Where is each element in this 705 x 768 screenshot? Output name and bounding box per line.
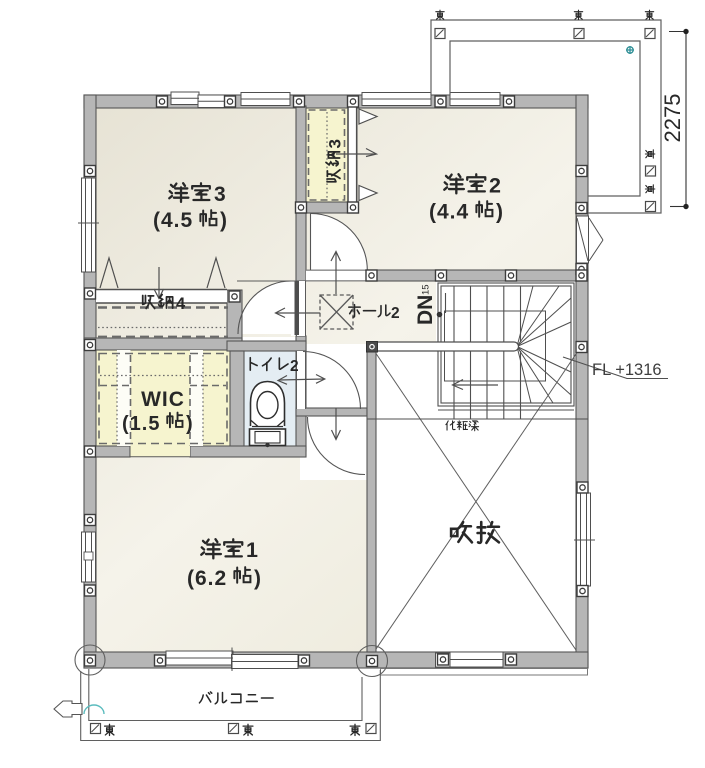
svg-text:3: 3 <box>325 139 344 148</box>
svg-text:15: 15 <box>421 284 432 295</box>
svg-text:(6.2: (6.2 <box>187 567 227 590</box>
svg-text:): ) <box>220 209 227 232</box>
svg-text:2275: 2275 <box>660 94 685 143</box>
svg-text:1: 1 <box>246 538 258 562</box>
svg-text:DN: DN <box>414 295 437 325</box>
svg-text:): ) <box>254 567 261 590</box>
svg-text:2: 2 <box>290 358 299 375</box>
svg-text:FL +1316: FL +1316 <box>592 361 662 379</box>
svg-text:(4.5: (4.5 <box>153 209 193 232</box>
svg-text:2: 2 <box>489 174 501 198</box>
svg-text:WIC: WIC <box>141 388 185 411</box>
svg-text:4: 4 <box>176 295 186 313</box>
svg-text:(1.5: (1.5 <box>122 413 160 435</box>
svg-text:): ) <box>186 413 193 435</box>
svg-text:3: 3 <box>214 183 226 206</box>
svg-text:): ) <box>496 201 503 224</box>
svg-text:2: 2 <box>391 305 400 322</box>
svg-text:(4.4: (4.4 <box>429 201 469 224</box>
